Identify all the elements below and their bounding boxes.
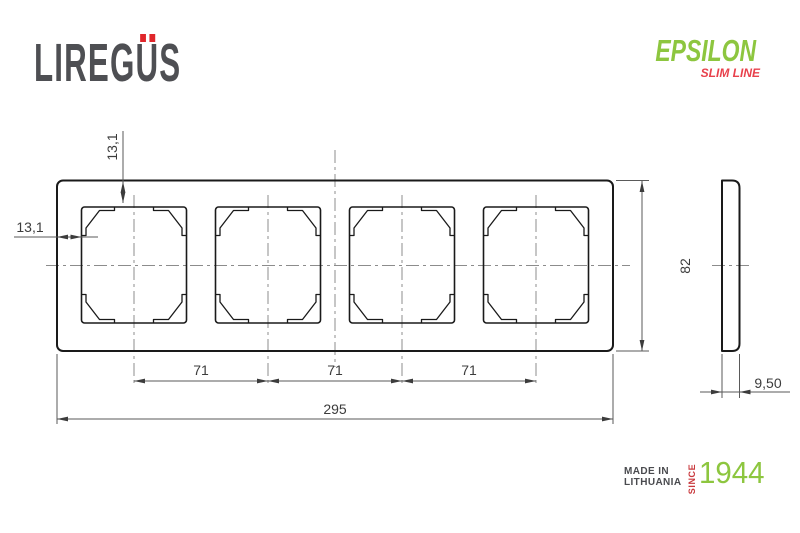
- dim-label-overall-width: 295: [323, 401, 347, 417]
- dim-label-depth: 9,50: [754, 375, 781, 391]
- dim-label-pitch-3: 71: [461, 362, 477, 378]
- dim-label-pitch-1: 71: [193, 362, 209, 378]
- dim-label-offset-left: 13,1: [16, 219, 43, 235]
- made-in-badge: MADE IN LITHUANIA SINCE 1944: [620, 458, 790, 502]
- made-in-line1: MADE IN: [624, 467, 681, 478]
- since-year: 1944: [699, 455, 765, 491]
- dimension-pitches: 71 71 71: [134, 362, 536, 383]
- since-label: SINCE: [687, 462, 697, 496]
- dim-label-pitch-2: 71: [327, 362, 343, 378]
- made-in-text: MADE IN LITHUANIA: [624, 467, 681, 488]
- dim-label-offset-top: 13,1: [104, 133, 120, 160]
- made-in-line2: LITHUANIA: [624, 478, 681, 489]
- technical-drawing: 13,1 13,1 71 71 71 295 82: [0, 0, 800, 533]
- centerlines: [46, 150, 750, 384]
- dim-label-overall-height: 82: [677, 258, 693, 274]
- dimension-depth: 9,50: [700, 354, 790, 398]
- dimension-offset-top: 13,1: [104, 131, 125, 203]
